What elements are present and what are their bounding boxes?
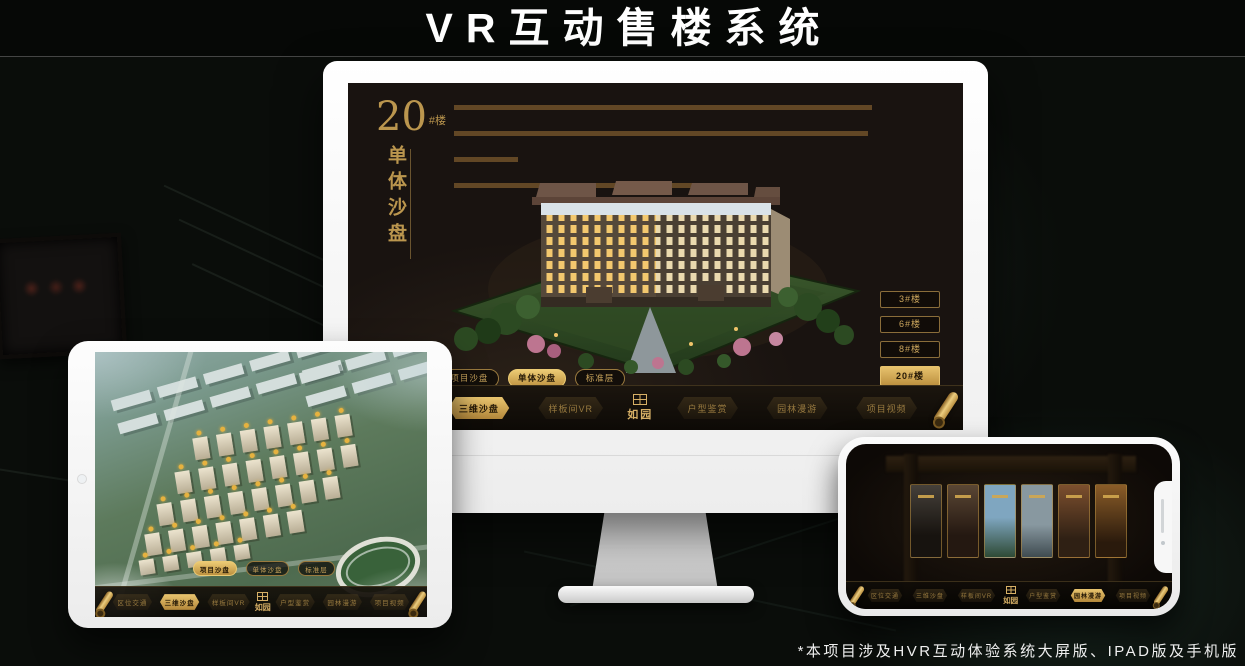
nav-item-garden-tour[interactable]: 园林漫游 [320,594,366,610]
scroll-icon[interactable] [95,590,114,615]
phone-device: 区位交通 三维沙盘 样板间VR 如园 户型鉴赏 园林漫游 项目视频 [838,437,1180,616]
floor-button-group: 3#楼 6#楼 8#楼 20#楼 [880,291,940,386]
pill-single-sandbox[interactable]: 单体沙盘 [246,561,290,576]
floor-title: 20#楼 [376,97,446,137]
nav-item-location-traffic[interactable]: 区位交通 [865,589,905,603]
camera-icon [77,474,87,484]
footnote-text: *本项目涉及HVR互动体验系统大屏版、IPAD版及手机版 [798,640,1239,661]
interior-beam [886,456,1136,472]
logo-seal-icon [257,592,268,601]
nav-item-garden-tour[interactable]: 园林漫游 [1068,589,1108,603]
logo-text: 如园 [1003,595,1018,606]
logo-seal-icon [1006,586,1016,594]
ruyuan-logo: 如园 [627,394,653,422]
nav-item-floorplan[interactable]: 户型鉴赏 [272,594,318,610]
nav-item-location-traffic[interactable]: 区位交通 [110,594,156,610]
scene-card[interactable] [1095,484,1127,558]
speaker-icon [1161,499,1164,533]
nav-item-floorplan[interactable]: 户型鉴赏 [1023,589,1063,603]
logo-text: 如园 [627,406,653,422]
nav-item-model-room-vr[interactable]: 样板间VR [533,397,608,419]
building-render [436,139,876,379]
nav-item-3d-sandbox[interactable]: 三维沙盘 [157,594,203,610]
nav-item-project-video[interactable]: 项目视频 [1113,589,1153,603]
aerial-masterplan-view[interactable] [95,352,427,617]
nav-item-model-room-vr[interactable]: 样板间VR [204,594,253,610]
pill-project-sandbox[interactable]: 项目沙盘 [193,561,237,576]
floor-number: 20 [376,94,427,140]
nav-item-model-room-vr[interactable]: 样板间VR [955,589,998,603]
scroll-icon[interactable] [408,590,427,615]
scene-card-strip [910,484,1127,558]
camera-icon [1161,541,1165,545]
phone-notch [1154,481,1172,573]
floor-button-6[interactable]: 6#楼 [880,316,940,333]
nav-item-project-video[interactable]: 项目视频 [851,397,922,419]
ipad-nav-bar: 区位交通 三维沙盘 样板间VR 如园 户型鉴赏 园林漫游 项目视频 [95,586,427,617]
mode-pill-group: 项目沙盘 单体沙盘 标准层 [193,561,335,576]
scene-card[interactable] [947,484,979,558]
nav-item-garden-tour[interactable]: 园林漫游 [762,397,833,419]
pill-standard-floor[interactable]: 标准层 [298,561,334,576]
promo-canvas: VR互动售楼系统 20#楼 单体沙盘 [0,0,1245,666]
nav-item-floorplan[interactable]: 户型鉴赏 [672,397,743,419]
ipad-device: 项目沙盘 单体沙盘 标准层 区位交通 三维沙盘 样板间VR 如园 户型鉴赏 园林… [68,341,452,628]
scene-card[interactable] [910,484,942,558]
floor-button-3[interactable]: 3#楼 [880,291,940,308]
ruyuan-logo: 如园 [255,592,271,613]
logo-text: 如园 [255,602,271,613]
nav-item-3d-sandbox[interactable]: 三维沙盘 [444,397,515,419]
phone-nav-bar: 区位交通 三维沙盘 样板间VR 如园 户型鉴赏 园林漫游 项目视频 [846,581,1172,609]
header-bar: VR互动售楼系统 [0,0,1245,57]
scene-card[interactable] [1058,484,1090,558]
monitor-stand [592,511,718,591]
floor-button-8[interactable]: 8#楼 [880,341,940,358]
nav-item-project-video[interactable]: 项目视频 [367,594,413,610]
page-title: VR互动售楼系统 [0,0,1245,56]
nav-item-3d-sandbox[interactable]: 三维沙盘 [910,589,950,603]
ruyuan-logo: 如园 [1003,586,1018,606]
scroll-icon[interactable] [932,390,960,426]
floor-subtitle-rule [410,149,411,259]
logo-seal-icon [633,394,647,405]
scroll-icon[interactable] [849,585,865,606]
monitor-stand-base [558,586,754,603]
floor-unit: #楼 [429,115,446,127]
scene-card[interactable] [1021,484,1053,558]
floor-subtitle: 单体沙盘 [382,145,409,275]
floor-button-20[interactable]: 20#楼 [880,366,940,386]
scroll-icon[interactable] [1153,585,1169,606]
scene-card[interactable] [984,484,1016,558]
ipad-screen: 项目沙盘 单体沙盘 标准层 区位交通 三维沙盘 样板间VR 如园 户型鉴赏 园林… [95,352,427,617]
phone-screen: 区位交通 三维沙盘 样板间VR 如园 户型鉴赏 园林漫游 项目视频 [846,444,1172,609]
